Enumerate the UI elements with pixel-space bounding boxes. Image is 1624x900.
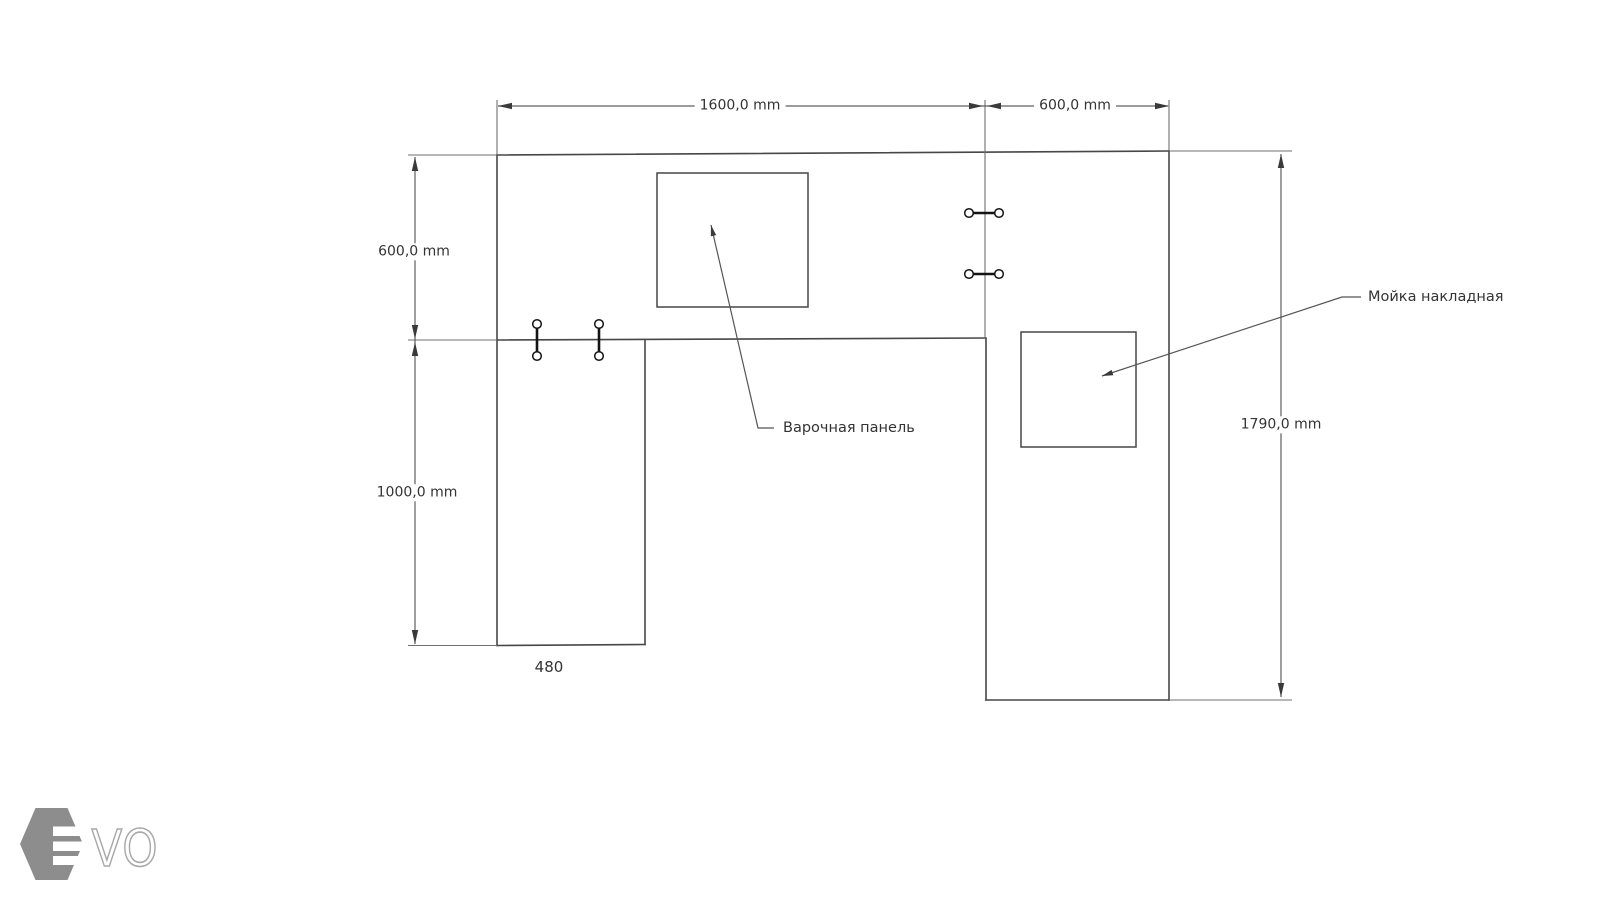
leader-arrow-icon xyxy=(711,225,716,236)
drawing-canvas: VO 1600,0 mm 600,0 mm 600,0 mm 1000,0 mm… xyxy=(0,0,1624,900)
sink-label: Мойка накладная xyxy=(1366,289,1505,307)
fastener-icon xyxy=(965,209,1004,218)
evo-logo: VO xyxy=(20,808,158,880)
dim-label-left-upper: 600,0 mm xyxy=(373,243,455,260)
dim-label-right-total: 1790,0 mm xyxy=(1236,416,1327,433)
leader-arrow-icon xyxy=(1102,370,1113,376)
evo-e-bars xyxy=(53,827,93,866)
dim-label-top-main: 1600,0 mm xyxy=(695,97,786,114)
fastener-icon xyxy=(965,270,1004,279)
dim-label-left-lower: 1000,0 mm xyxy=(372,484,463,501)
cooktop-label: Варочная панель xyxy=(781,420,917,438)
dim-label-top-right: 600,0 mm xyxy=(1034,97,1116,114)
evo-logo-letters: VO xyxy=(92,819,159,878)
sink-leader-line xyxy=(1102,297,1361,376)
dimension-lines xyxy=(415,106,1281,697)
cooktop-cutout xyxy=(657,173,808,307)
countertop-drawing-svg: VO xyxy=(0,0,1624,900)
cooktop-leader-line xyxy=(711,225,774,428)
dimension-arrowheads xyxy=(412,103,1284,697)
sink-cutout xyxy=(1021,332,1136,447)
extension-lines xyxy=(408,100,1292,700)
dim-label-leg-width: 480 xyxy=(530,658,569,677)
